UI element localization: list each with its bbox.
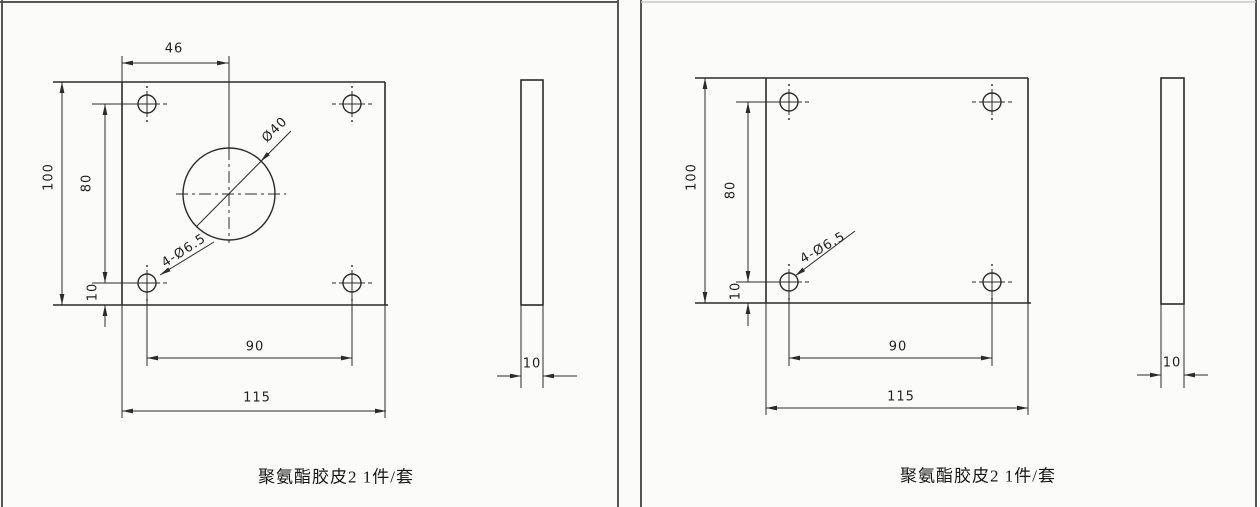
dim-thickness-label: 10 <box>523 358 542 371</box>
dim-center-offset-label: 46 <box>165 43 184 56</box>
right-side-view <box>1137 78 1208 388</box>
part-caption: 聚氨酯胶皮2 1件/套 <box>900 468 1056 485</box>
part-caption: 聚氨酯胶皮2 1件/套 <box>258 469 414 486</box>
dim-bottom-offset-label: 10 <box>730 282 743 301</box>
dim-hole-pitch-v-label: 80 <box>725 181 738 200</box>
dim-width-label: 115 <box>243 392 271 405</box>
dim-hole-pitch-v-label: 80 <box>81 174 94 193</box>
left-front-view <box>53 56 388 418</box>
dim-width-label: 115 <box>887 391 915 404</box>
left-side-view <box>497 80 577 388</box>
dim-hole-pitch-h-label: 90 <box>889 341 908 354</box>
dim-height-label: 100 <box>686 163 699 191</box>
right-front-view <box>695 78 1031 415</box>
drawing-sheet: 46 100 80 10 90 115 Ø40 4-Ø6.5 10 聚氨酯胶皮2… <box>0 0 1260 507</box>
dim-height-label: 100 <box>43 163 56 191</box>
dim-hole-pitch-h-label: 90 <box>246 341 265 354</box>
dim-thickness-label: 10 <box>1163 357 1182 370</box>
dim-bottom-offset-label: 10 <box>87 283 100 302</box>
